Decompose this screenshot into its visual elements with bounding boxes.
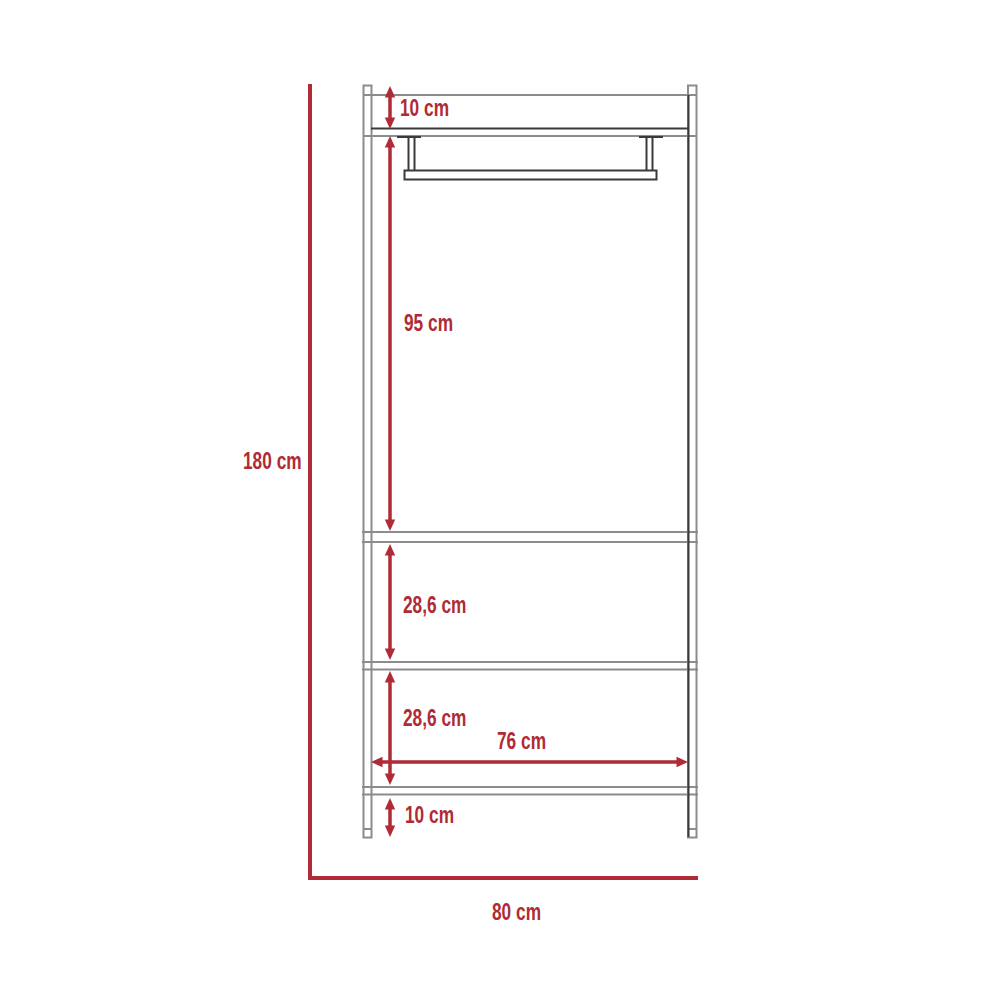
arrowhead-icon [371, 757, 383, 767]
dimension-diagram: 10 cm 95 cm 180 cm 28,6 cm 28,6 cm 76 cm… [0, 0, 1000, 1000]
inner-width-label: 76 cm [497, 729, 546, 753]
hanging-space-height-label: 95 cm [404, 311, 453, 335]
clothes-rod [405, 171, 657, 180]
wardrobe-drawing [0, 0, 1000, 1000]
bottom-clearance-label: 10 cm [405, 803, 454, 827]
arrowhead-icon [385, 826, 395, 838]
arrowhead-icon [385, 774, 395, 786]
top-panel-height-label: 10 cm [400, 96, 449, 120]
total-height-label: 180 cm [243, 449, 302, 473]
dimension-lines [310, 84, 698, 878]
arrowhead-icon [385, 136, 395, 148]
arrowhead-icon [677, 757, 689, 767]
arrowhead-icon [385, 86, 395, 98]
arrowhead-icon [385, 798, 395, 810]
arrowhead-icon [385, 649, 395, 661]
upper-shelf-gap-label: 28,6 cm [403, 593, 466, 617]
lower-shelf-gap-label: 28,6 cm [403, 706, 466, 730]
arrowhead-icon [385, 544, 395, 556]
total-width-label: 80 cm [492, 900, 541, 924]
overall-extent-line [310, 84, 698, 878]
arrowhead-icon [385, 520, 395, 532]
arrowhead-icon [385, 118, 395, 130]
arrowhead-icon [385, 671, 395, 683]
left-post [364, 86, 372, 838]
